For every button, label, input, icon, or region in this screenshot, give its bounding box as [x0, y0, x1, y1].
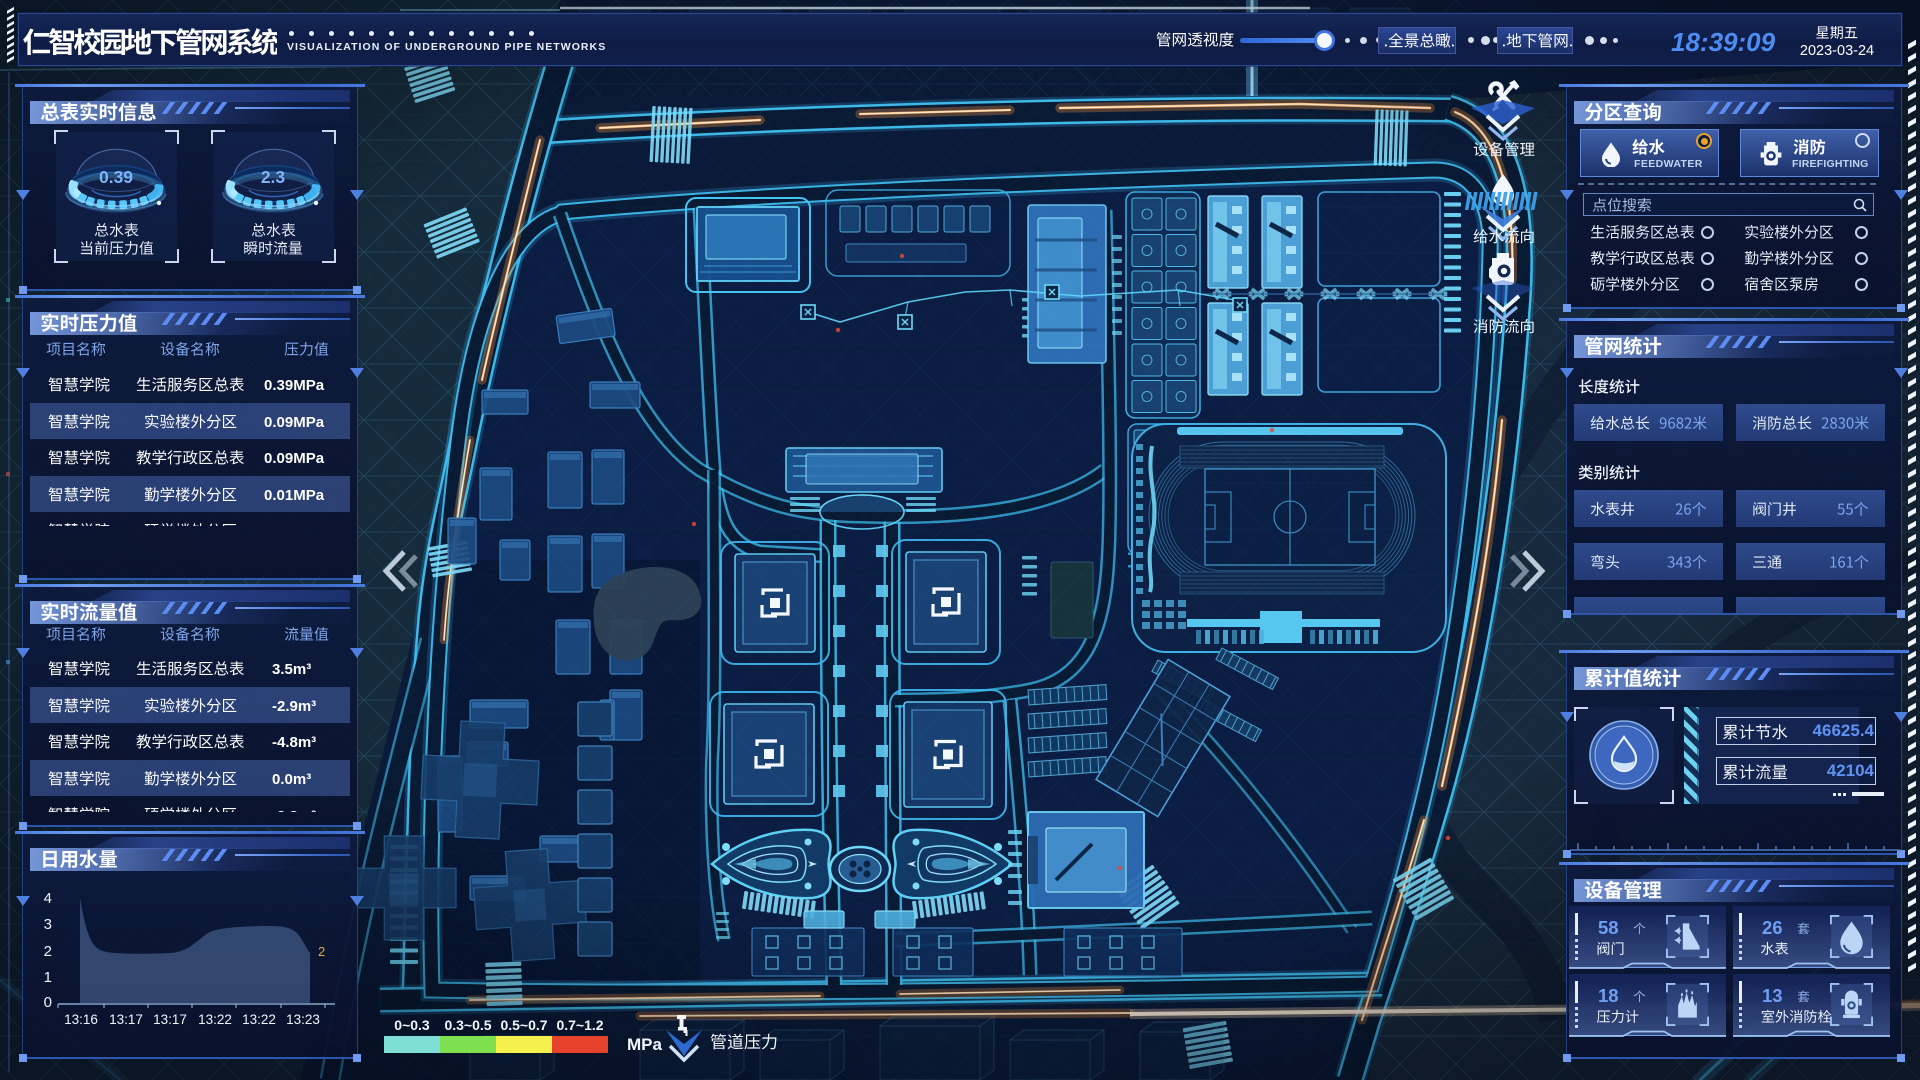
svg-text:0.5~0.7: 0.5~0.7: [500, 1017, 547, 1033]
svg-text:13:17: 13:17: [109, 1012, 143, 1027]
svg-text:0: 0: [44, 994, 52, 1011]
svg-text:13:22: 13:22: [198, 1012, 232, 1027]
svg-text:13:22: 13:22: [242, 1012, 276, 1027]
svg-text:4: 4: [44, 890, 52, 907]
svg-text:3: 3: [44, 916, 52, 933]
svg-text:0.7~1.2: 0.7~1.2: [556, 1017, 603, 1033]
svg-text:0~0.3: 0~0.3: [394, 1017, 430, 1033]
svg-text:2: 2: [44, 943, 52, 960]
svg-text:13:16: 13:16: [64, 1012, 98, 1027]
svg-text:2: 2: [318, 944, 325, 959]
svg-text:0.39: 0.39: [99, 167, 133, 187]
svg-text:13:23: 13:23: [286, 1012, 320, 1027]
svg-text:1: 1: [44, 969, 52, 986]
svg-text:13:17: 13:17: [153, 1012, 187, 1027]
svg-text:MPa: MPa: [627, 1035, 663, 1054]
svg-text:0.3~0.5: 0.3~0.5: [444, 1017, 491, 1033]
svg-text:2.3: 2.3: [261, 167, 286, 187]
